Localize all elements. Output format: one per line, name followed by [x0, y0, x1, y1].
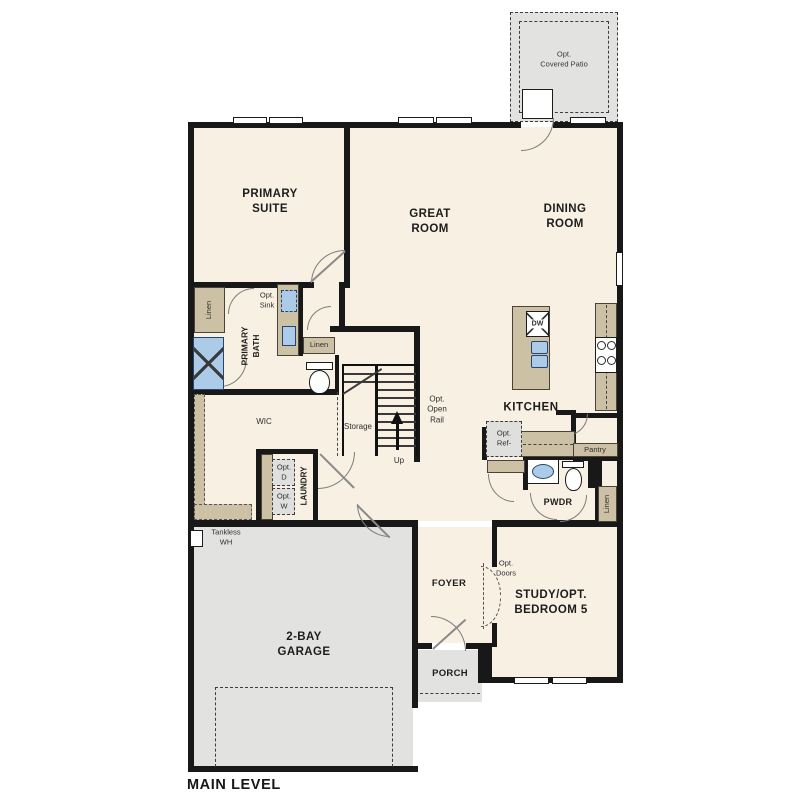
wic-shelving: [194, 504, 252, 520]
room-label-primary-suite: PRIMARY SUITE: [242, 187, 297, 217]
vanity-sink: [282, 326, 296, 346]
window: [436, 117, 472, 124]
room-label-primary-bath: PRIMARY BATH: [240, 327, 263, 366]
window: [269, 117, 303, 124]
room-label-foyer: FOYER: [432, 578, 466, 590]
storage-dashed-line: [337, 392, 340, 456]
plan-title: MAIN LEVEL: [187, 777, 281, 793]
label-opt-sink: Opt. Sink: [260, 290, 275, 310]
hall-counter: [487, 460, 525, 473]
label-linen: Linen: [602, 495, 612, 513]
up-arrow-shaft: [396, 424, 399, 450]
room-label-wic: WIC: [256, 417, 272, 427]
covered-patio-label: Opt. Covered Patio: [540, 49, 588, 69]
window: [514, 677, 549, 684]
window: [233, 117, 267, 124]
tankless-water-heater: [190, 530, 203, 547]
window: [552, 677, 587, 684]
toilet: [309, 370, 330, 394]
wic-shelving: [194, 394, 205, 506]
window: [398, 117, 434, 124]
island-sink: [531, 355, 548, 368]
room-label-kitchen: KITCHEN: [503, 401, 558, 416]
dishwasher-label: DW: [531, 319, 545, 328]
room-label-pwdr: PWDR: [544, 497, 573, 509]
dishwasher: DW: [526, 311, 549, 337]
room-label-great-room: GREAT ROOM: [409, 207, 450, 237]
optional-sink: [281, 290, 297, 312]
window: [616, 252, 623, 286]
label-opt-doors: Opt. Doors: [496, 558, 516, 578]
floor-plan: DW Opt. Covered: [0, 0, 810, 810]
toilet-tank: [562, 461, 584, 468]
counter-dash-line: [523, 444, 573, 445]
up-arrow-icon: [391, 411, 403, 424]
toilet-tank: [306, 362, 333, 370]
label-pantry: Pantry: [584, 445, 606, 455]
label-opt-washer: Opt. W: [277, 491, 291, 511]
room-label-garage: 2-BAY GARAGE: [278, 630, 331, 660]
window: [570, 117, 606, 124]
label-opt-ref: Opt. Ref-: [497, 428, 511, 448]
powder-sink: [532, 464, 554, 479]
label-linen: Linen: [310, 340, 328, 350]
label-opt-dryer: Opt. D: [277, 462, 291, 482]
island-sink: [531, 341, 548, 354]
shower: [193, 337, 224, 390]
patio-door-leaf: [522, 89, 553, 119]
toilet: [565, 468, 582, 491]
room-label-storage: Storage: [344, 422, 372, 432]
label-tankless-wh: Tankless WH: [211, 527, 240, 547]
porch-edge-dashed: [420, 693, 480, 694]
label-up: Up: [394, 456, 404, 466]
room-label-laundry: LAUNDRY: [300, 467, 311, 506]
room-label-porch: PORCH: [432, 668, 468, 680]
garage-door-outline: [215, 687, 393, 767]
room-label-study: STUDY/OPT. BEDROOM 5: [514, 588, 587, 618]
label-opt-open-rail: Opt. Open Rail: [427, 394, 447, 425]
label-linen: Linen: [204, 301, 214, 319]
room-label-dining-room: DINING ROOM: [544, 202, 587, 232]
